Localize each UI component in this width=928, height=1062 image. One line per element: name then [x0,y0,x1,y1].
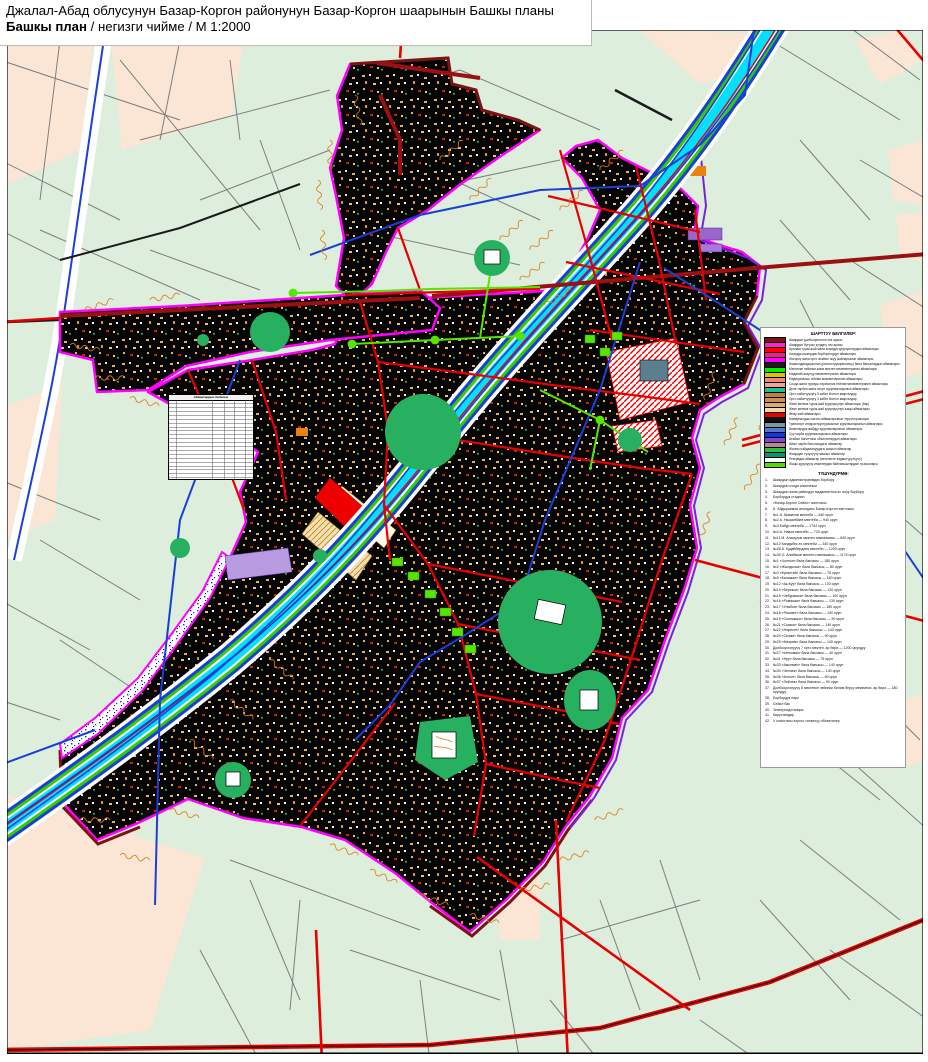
plan-name: Башкы план [6,19,87,34]
explanation-section: ТҮШҮНДҮРМӨ: Шаардын административдик бор… [764,471,903,723]
legend-item-label: Шаардын бүгүнкү күндөгү чек арасы [789,344,843,347]
explanation-item: Шаардын административдик борбору [773,478,903,482]
explanation-item: №24 «Сезим» бала бакчасы — 90 орун [773,634,903,638]
explanation-item: №31 «Нур» бала бакчасы — 75 орун [773,657,903,661]
legend-item-label: Транспорт инфраструктурасынын курулмалар… [789,423,883,426]
explanation-item: №19 «Солнышко» бала бакчасы — 90 орун [773,617,903,621]
explanation-item: «Базар-Коргон Сейил» аянтчасы [773,501,903,505]
explanation-item: №27 «Ынтымак» бала бакчасы — 40 орун [773,651,903,655]
legend-item-label: Өнөр жай аймактары [789,413,820,416]
explanation-item: Борбордук стадион [773,495,903,499]
legend-item-label: Айыл чарба багытындагы аймактар [789,443,842,446]
explanation-item: №17 «Улыбка» бала бакчасы — 180 орун [773,605,903,609]
explanation-item: Шаардын соода комплекси [773,484,903,488]
land-balance-table: Аймактардын балансы [168,394,254,480]
explanation-item: №22 «Наристе» бала бакчасы — 140 орун [773,628,903,632]
explanation-item: Долбоорлонуучу 7 орто мектеп, ар бири — … [773,646,903,650]
explanation-item: №3 «Күнөстөй» бала бакчасы — 75 орун [773,571,903,575]
explanation-item: Көрүстөндөр [773,713,903,717]
legend-item-label: Суу чарба курулмаларынын аймактары [789,433,848,436]
legend-item-label: Жашылдандырылган (реконструкцияланчу) ба… [789,363,899,366]
legend-item-label: Жеке менчик турак-жай курулушунун аймакт… [789,403,869,406]
legend-item-label: Соода жана турмуш-тиричилик тейлөө мекем… [789,383,888,386]
legend-item-label: Медициналык тейлөө мекемелеринин аймакта… [789,378,862,381]
legend-item-label: Инженердик жабдуу курулмаларынын аймакта… [789,428,862,431]
legend-rows: Шаардын долбоорлонгон чек арасы Шаардын … [764,338,903,467]
legend-item-label: Дене тарбия жана спорт курулмаларынын ай… [789,388,869,391]
explanation-item: №16 «Ромашка» бала бакчасы — 130 орун [773,599,903,603]
explanation-item: Долбоорлонуучу 8 мектепке чейинки билим … [773,686,903,694]
explanation-item: №18 «Рассвет» бала бакчасы — 140 орун [773,611,903,615]
explanation-item: №28 А. Кудайбердиев мектеби — 1200 орун [773,547,903,551]
legend-title: ШАРТТУУ БЕЛГИЛЕР: [764,331,903,336]
legend-item-label: Жаңыдан түзүлүүчү жашыл аймактар [789,453,845,456]
legend-item-label: Мектепке чейинки жана мектеп мекемелерин… [789,368,877,371]
explanation-item: №34 «Челпек» бала бакчасы — 140 орун [773,669,903,673]
explanation-item: №37 «Лейлек» бала бакчасы — 90 орун [773,680,903,684]
explanation-title: ТҮШҮНДҮРМӨ: [764,471,903,476]
master-plan-page: { "header": { "title": "Джалал-Абад облу… [0,0,928,1062]
explanation-item: №21 «Сказка» бала бакчасы — 140 орун [773,623,903,627]
legend-item-label: Резервдик аймактар (келечекте өздөштүрүл… [789,458,862,461]
legend-item-label: Жеке менчик турак-жай курулушунун жаңы а… [789,408,870,411]
explanation-item: №2 «Жылдызча» бала бакчасы — 80 орун [773,565,903,569]
explanation-item: Сейил бак [773,702,903,706]
explanation-item: №2 А. Нышанбаев мектеби — 940 орун [773,518,903,522]
plan-scale: / негизги чийме / М 1:2000 [87,19,251,34]
legend-item-label: Аралаш турак-жай жана коомдук курулуштар… [789,348,879,351]
legend-item-label: Орто кабаттуулугу 5 кабат болгон квартал… [789,393,857,396]
explanation-item: №14 «Березка» бала бакчасы — 120 орун [773,588,903,592]
legend-item-label: Коммуналдык-сактоо аймактарынын территор… [789,418,869,421]
transport-zone [640,360,668,381]
explanation-list: Шаардын административдик борбору Шаардын… [764,478,903,723]
explanation-item: №12 Кандыбек ат. мектеби — 240 орун [773,542,903,546]
explanation-item: №36 «Алтын» бала бакчасы — 60 орун [773,675,903,679]
explanation-item: №3 Бабур мектеби — 1744 орун [773,524,903,528]
explanation-item: №15 «Чебурашка» бала бакчасы — 100 орун [773,594,903,598]
legend-item-label: Коомдук-ишкердик борборлордун аймактары [789,353,856,356]
legend-item-label: Атайын багыттагы объектилердин аймактары [789,438,857,441]
map-title: Джалал-Абад облусунун Базар-Коргон район… [6,3,591,18]
explanation-item: №1 А. Шаматов мектеби — 640 орун [773,513,903,517]
explanation-item: Шаардын жана райондун маданияттык-эс алу… [773,490,903,494]
explanation-item: №11 М. Алыкулов мектеп-гимназиясы — 840 … [773,536,903,540]
legend-panel: ШАРТТУУ БЕЛГИЛЕР: Шаардын долбоорлонгон … [760,327,906,768]
explanation-item: №5 «Балажан» бала бакчасы — 160 орун [773,576,903,580]
legend-item: Жаңы курулуучу инженердик байланыштардын… [764,463,903,467]
explanation-item: №4 А. Навои мектеби — 720 орун [773,530,903,534]
explanation-item: №30 О. Алибеков мектеп-гимназиясы — 1176… [773,553,903,557]
explanation-item: №33 «Акылман» бала бакчасы — 140 орун [773,663,903,667]
explanation-item: №1 «Чолпон» бала бакчасы — 180 орун [773,559,903,563]
title-block: Джалал-Абад облусунун Базар-Коргон район… [0,0,592,46]
land-balance-grid [169,400,253,479]
map-subtitle: Башкы план / негизги чийме / М 1:2000 [6,19,591,34]
legend-item-label: Жогорку жана орто атайын окуу жайларынын… [789,358,873,361]
legend-item-label: Жаңы курулуучу инженердик байланыштардын… [789,463,878,466]
legend-item-label: Маданий-агартуу мекемелеринин аймактары [789,373,856,376]
legend-item-label: Шаардын долбоорлонгон чек арасы [789,339,842,342]
explanation-item: Электрподстанция [773,708,903,712]
legend-item-label: Орто кабаттуулугу 3 кабат болгон квартал… [789,398,857,401]
explanation-item: №12 «Ак-Куу» бала бакчасы — 130 орун [773,582,903,586]
explanation-item: Борбордук парк [773,696,903,700]
legend-swatch [764,462,786,468]
explanation-item: Б. Абдыраимов атындагы Базар-Коргон аянт… [773,507,903,511]
legend-item-label: Жалпы пайдалануудагы жашыл аймактар [789,448,851,451]
explanation-item: V класстагы коргоо тилкелүү объектилер [773,719,903,723]
explanation-item: №25 «Мээрим» бала бакчасы — 140 орун [773,640,903,644]
